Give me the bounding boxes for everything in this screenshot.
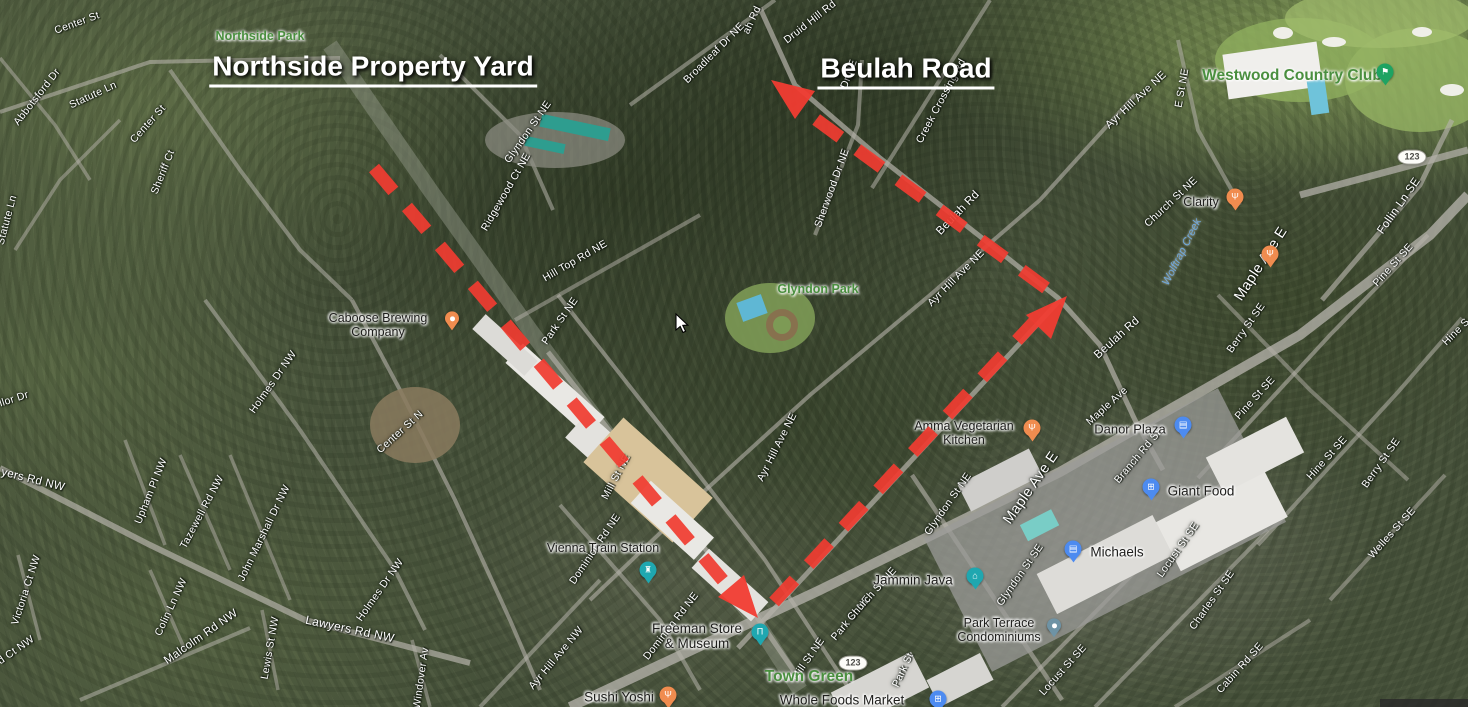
route-arrowhead-icon: [771, 80, 815, 119]
route-dashed-line: [374, 168, 726, 584]
annotation-headline: Beulah Road: [817, 53, 994, 90]
mouse-cursor: [675, 313, 691, 335]
route-dashed-line: [774, 322, 1034, 602]
attribution-bar-fragment: [1380, 699, 1468, 707]
route-annotation-layer: [0, 0, 1468, 707]
route-dashed-line: [806, 112, 1046, 288]
annotation-headline: Northside Property Yard: [209, 51, 537, 88]
route-arrowhead-icon: [718, 575, 758, 618]
satellite-map-canvas[interactable]: Center StAbbotsford DrStatute LnCenter S…: [0, 0, 1468, 707]
